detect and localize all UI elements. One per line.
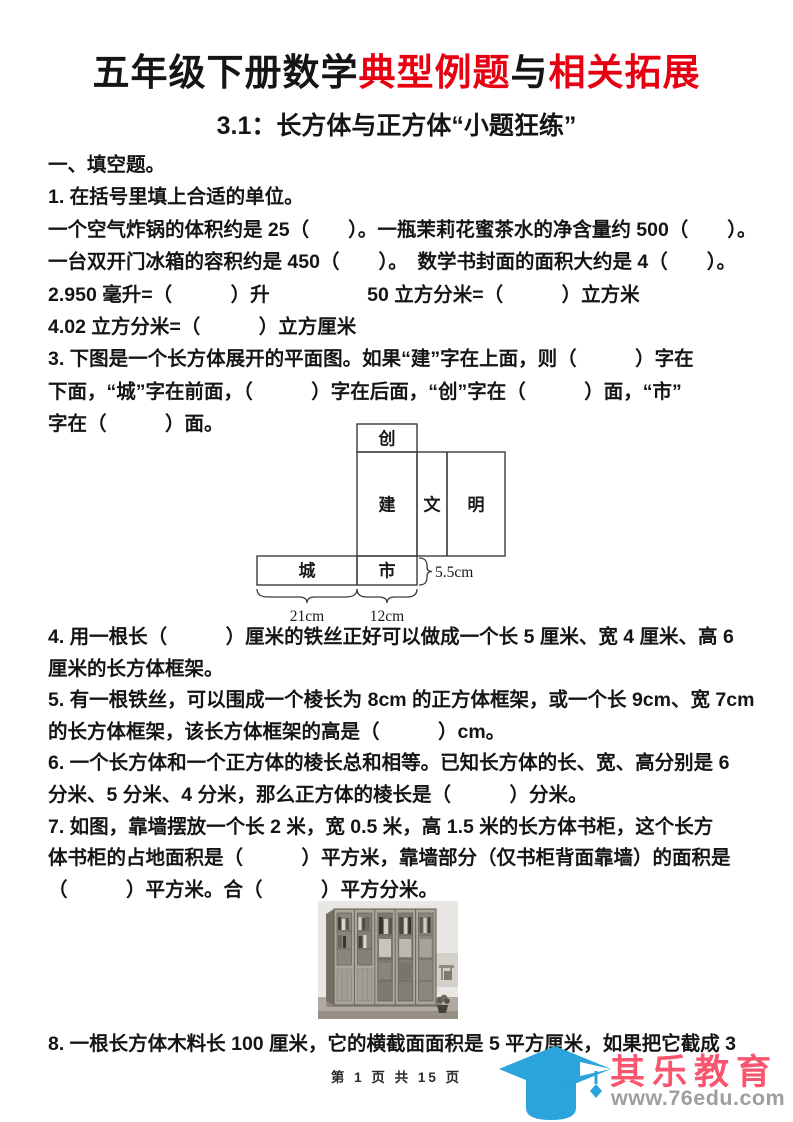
question-6-line-2: 分米、5 分米、4 分米，那么正方体的棱长是（ ）分米。	[48, 780, 764, 812]
section-heading: 一、填空题。	[48, 149, 764, 181]
question-2-line-2: 4.02 立方分米=（ ）立方厘米	[48, 311, 764, 343]
question-1: 1. 在括号里填上合适的单位。	[48, 181, 764, 213]
bookcase-photo	[318, 901, 458, 1019]
brand-url: www.76edu.com	[611, 1086, 791, 1111]
graduation-cap-icon	[494, 1040, 616, 1122]
dim-height: 5.5cm	[435, 564, 473, 581]
title-part-red2: 相关拓展	[549, 52, 701, 93]
net-label-chuang: 创	[378, 429, 396, 449]
net-label-ming: 明	[468, 496, 485, 515]
question-5: 5. 有一根铁丝，可以围成一个棱长为 8cm 的正方体框架，或一个长 9cm、宽…	[48, 685, 764, 717]
questions-block-2: 4. 用一根长（ ）厘米的铁丝正好可以做成一个长 5 厘米、宽 4 厘米、高 6…	[48, 622, 764, 906]
net-label-jian: 建	[379, 495, 396, 515]
question-5-line-2: 的长方体框架，该长方体框架的高是（ ）cm。	[48, 717, 764, 749]
question-7-line-2: 体书柜的占地面积是（ ）平方米，靠墙部分（仅书柜背面靠墙）的面积是	[48, 843, 764, 875]
question-3: 3. 下图是一个长方体展开的平面图。如果“建”字在上面，则（ ）字在	[48, 343, 764, 375]
question-4: 4. 用一根长（ ）厘米的铁丝正好可以做成一个长 5 厘米、宽 4 厘米、高 6	[48, 622, 764, 654]
page-title: 五年级下册数学典型例题与相关拓展	[0, 42, 793, 96]
question-7: 7. 如图，靠墙摆放一个长 2 米，宽 0.5 米，高 1.5 米的长方体书柜，…	[48, 812, 764, 844]
section-subtitle: 3.1：长方体与正方体“小题狂练”	[0, 106, 793, 142]
worksheet-page: 五年级下册数学典型例题与相关拓展 3.1：长方体与正方体“小题狂练” 一、填空题…	[0, 0, 793, 1122]
title-part-red1: 典型例题	[359, 52, 511, 93]
question-6: 6. 一个长方体和一个正方体的棱长总和相等。已知长方体的长、宽、高分别是 6	[48, 748, 764, 780]
brace-5-5cm	[419, 558, 432, 585]
net-label-wen: 文	[424, 495, 442, 515]
brace-12cm	[357, 589, 417, 603]
question-1-line-3: 一台双开门冰箱的容积约是 450（ ）。 数学书封面的面积大约是 4（ ）。	[48, 246, 764, 278]
title-part-black2: 与	[511, 52, 549, 93]
title-part-black1: 五年级下册数学	[93, 52, 359, 93]
question-4-line-2: 厘米的长方体框架。	[48, 654, 764, 686]
question-3-line-2: 下面，“城”字在前面，（ ）字在后面，“创”字在（ ）面，“市”	[48, 376, 764, 408]
net-label-shi: 市	[379, 561, 396, 581]
question-1-line-2: 一个空气炸锅的体积约是 25（ ）。一瓶茉莉花蜜茶水的净含量约 500（ ）。	[48, 214, 764, 246]
brace-21cm	[257, 589, 357, 603]
question-2: 2.950 毫升=（ ）升 50 立方分米=（ ）立方米	[48, 279, 764, 311]
questions-block-1: 一、填空题。 1. 在括号里填上合适的单位。 一个空气炸锅的体积约是 25（ ）…	[48, 149, 764, 441]
cuboid-net-diagram: 创 建 文 明 城 市 21cm 12cm 5.5cm	[228, 418, 520, 628]
net-label-cheng: 城	[299, 562, 316, 581]
